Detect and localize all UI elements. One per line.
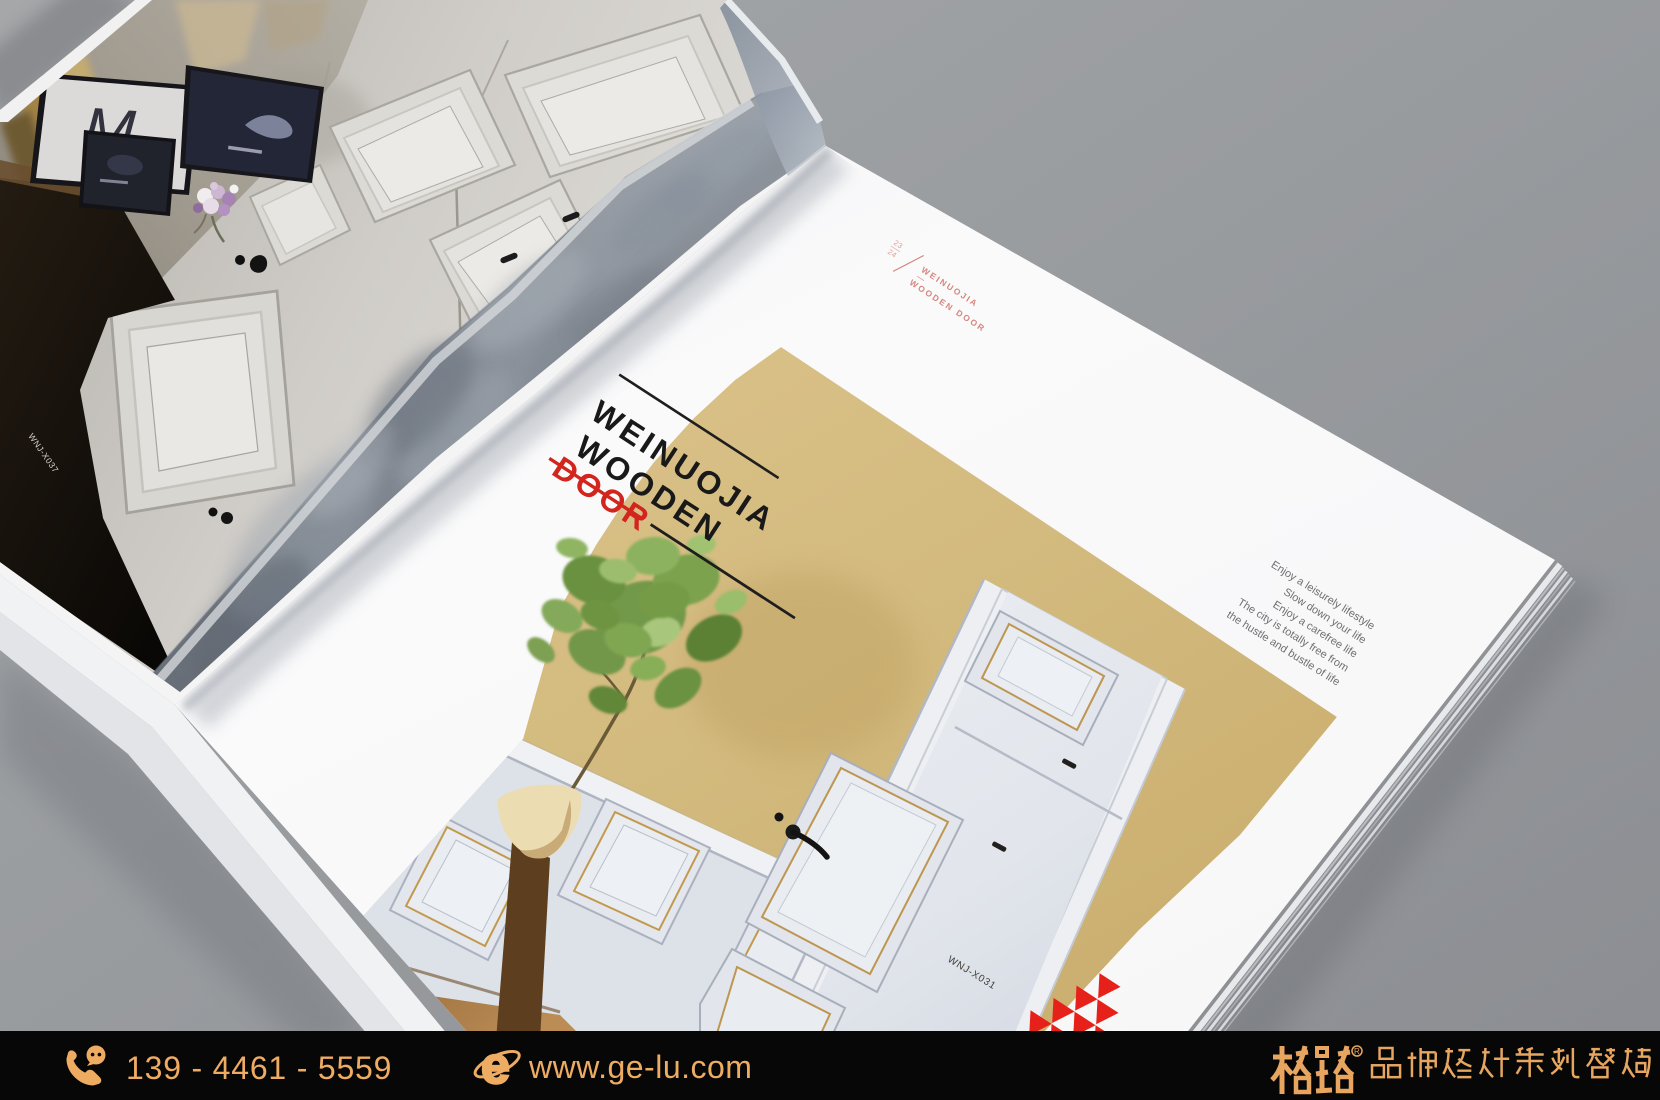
svg-text:e: e [481,1037,510,1095]
svg-text:139 - 4461 - 5559: 139 - 4461 - 5559 [126,1050,392,1086]
svg-text:R: R [1354,1047,1360,1056]
svg-text:www.ge-lu.com: www.ge-lu.com [528,1049,752,1085]
